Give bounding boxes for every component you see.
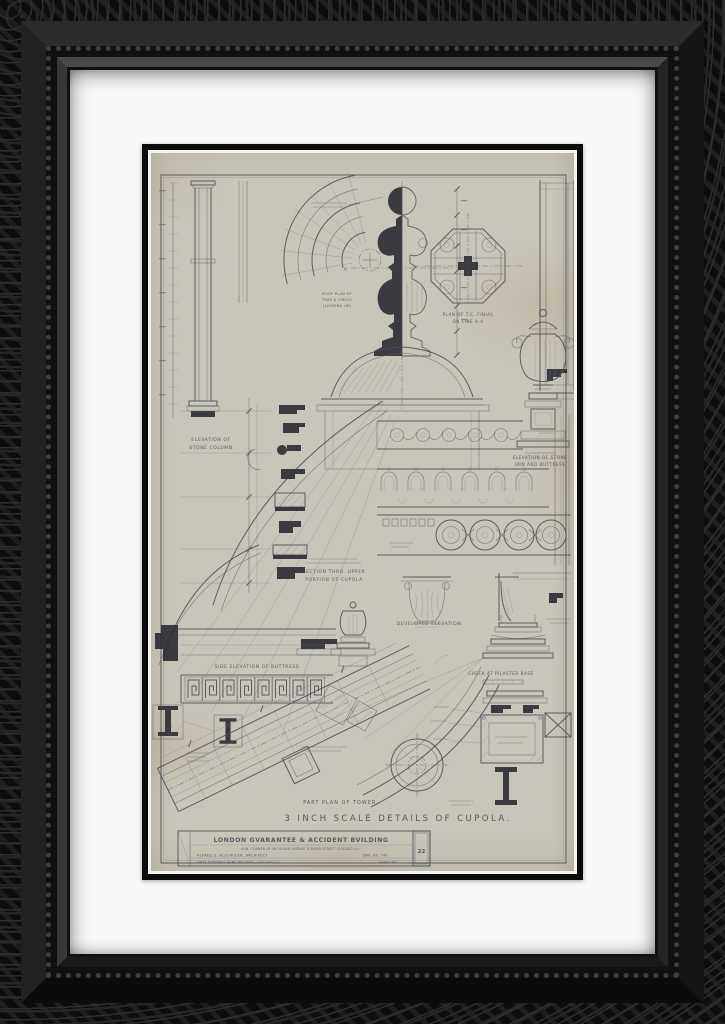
finial-plan-octagon: PLAN OF T.C. FINIAL ON LINE A-A [413, 213, 523, 324]
mat-board: ELEVATION OF STONE COLUMN [70, 70, 655, 954]
label-urn-1: ELEVATION OF STONE [513, 455, 568, 460]
trap-circle-roof-plan-fan: ROOF PLAN OF TRAP & CIRCLE (LOOKING UP) [281, 173, 384, 308]
stone-column-elevation: ELEVATION OF STONE COLUMN [159, 181, 247, 451]
label-section-1: SECTION THRO. UPPER [303, 569, 366, 575]
label-pilaster-base: CHECK AT PILASTER BASE [468, 671, 533, 676]
label-trap-plan-3: (LOOKING UP) [323, 304, 351, 308]
cupola-dome-elevation [317, 347, 489, 469]
label-finial-plan-1: PLAN OF T.C. FINIAL [442, 312, 493, 317]
label-developed-elevation: DEVELOPED ELEVATION [397, 621, 462, 627]
pilaster-base-detail: CHECK AT PILASTER BASE [431, 615, 571, 805]
label-stone-column-2: STONE COLUMN [189, 445, 233, 451]
label-trap-plan-2: TRAP & CIRCLE [321, 298, 352, 302]
title-block-architect: ALFRED S. ALSCHULER, ARCHITECT [197, 854, 269, 858]
label-trap-plan-1: ROOF PLAN OF [322, 292, 352, 296]
title-block-sheet-number: 22 [418, 849, 426, 855]
label-buttress: SIDE ELEVATION OF BUTTRESS [215, 664, 300, 670]
steel-beam-details [153, 705, 242, 761]
architectural-drawing: ELEVATION OF STONE COLUMN [151, 153, 574, 871]
drawing-sheet: ELEVATION OF STONE COLUMN [151, 153, 574, 871]
title-block: LONDON GVARANTEE & ACCIDENT BVILDING N.W… [178, 831, 430, 866]
black-fillet-border: ELEVATION OF STONE COLUMN [142, 144, 583, 880]
title-block-sheet-no-label: SHEET NO. [379, 861, 398, 865]
label-finial-plan-2: ON LINE A-A [453, 319, 484, 324]
terra-cotta-finial-section-elevation: A A [344, 181, 467, 411]
tower-part-plan: PART PLAN OF TOWER. [153, 636, 499, 811]
small-annotation [311, 197, 383, 207]
label-stone-column-1: ELEVATION OF [191, 437, 230, 443]
label-section-2: PORTION OF CUPOLA [305, 577, 363, 583]
stone-urn-elevation: ELEVATION OF STONE URN AND BUTTRESS [512, 310, 574, 468]
title-block-building: LONDON GVARANTEE & ACCIDENT BVILDING [213, 837, 388, 844]
title-block-address: N.W. CORNER OF MICHIGAN AVENUE & RIVER S… [241, 847, 360, 851]
buttress-side-elevation: SIDE ELEVATION OF BUTTRESS [155, 625, 336, 703]
framed-print-photo: ELEVATION OF STONE COLUMN [0, 0, 725, 1024]
label-tower-plan: PART PLAN OF TOWER. [303, 800, 379, 806]
title-block-office: FIRST NATIONAL BANK BVILDING, CHICAGO IL… [197, 861, 281, 865]
label-urn-2: URN AND BUTTRESS [515, 462, 566, 467]
title-block-drawing-no: DRG. NO. 745 [363, 854, 387, 858]
datum-letter-a-left: A [344, 267, 347, 272]
sheet-title: 3 INCH SCALE DETAILS OF CUPOLA. [284, 814, 511, 824]
stone-buttress-strip [534, 180, 574, 433]
